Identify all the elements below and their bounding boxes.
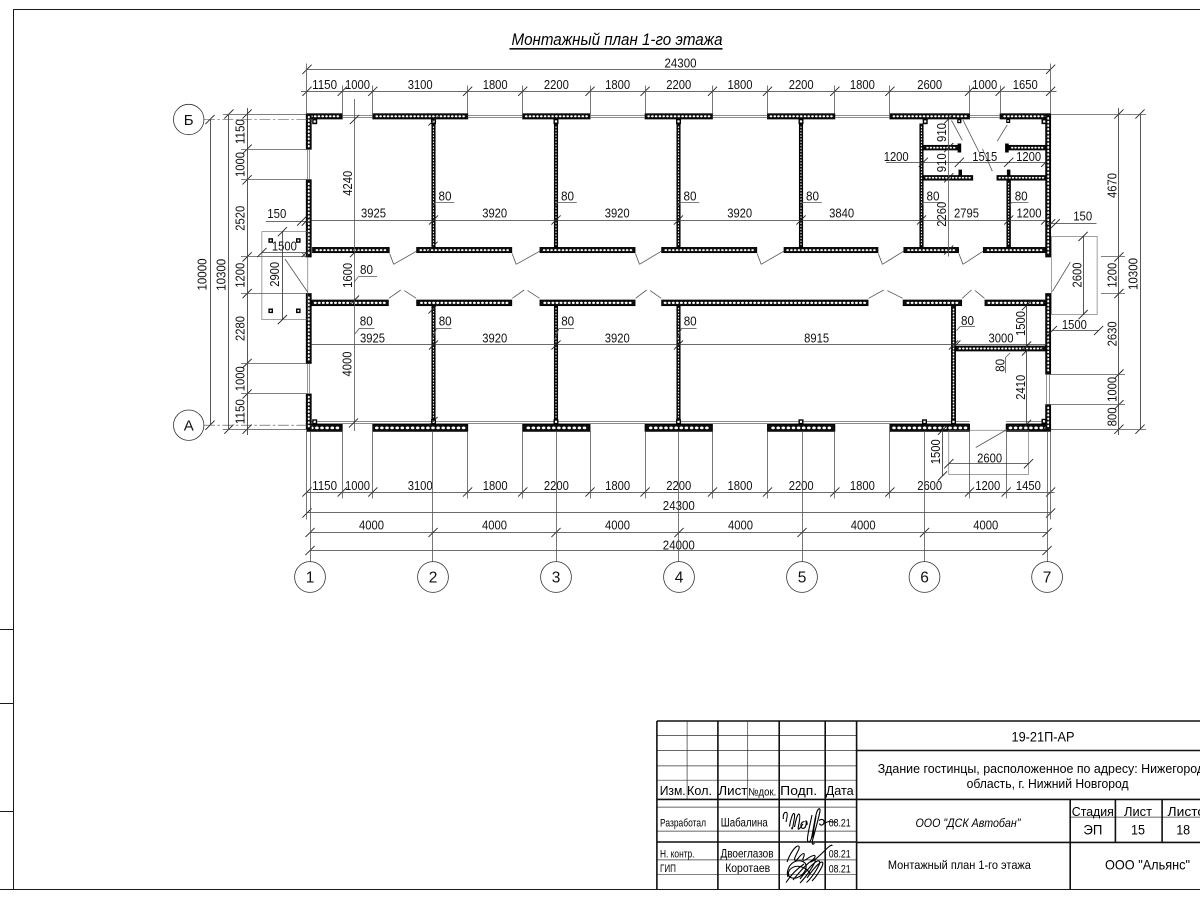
svg-text:1515: 1515: [972, 150, 997, 164]
svg-text:1150: 1150: [234, 119, 248, 144]
svg-text:2200: 2200: [789, 78, 814, 92]
svg-text:910: 910: [935, 153, 949, 172]
svg-text:3: 3: [552, 570, 561, 587]
svg-text:2600: 2600: [917, 78, 942, 92]
svg-text:Монтажный план 1-го этажа: Монтажный план 1-го этажа: [888, 858, 1031, 872]
svg-text:1800: 1800: [483, 78, 508, 92]
svg-text:Кол.: Кол.: [687, 783, 712, 798]
svg-text:1500: 1500: [929, 439, 943, 464]
svg-text:Лист: Лист: [1124, 804, 1152, 819]
svg-text:80: 80: [806, 189, 819, 203]
svg-text:1000: 1000: [972, 78, 997, 92]
svg-text:Изм.: Изм.: [660, 783, 686, 798]
svg-text:1200: 1200: [884, 150, 909, 164]
svg-text:1150: 1150: [312, 78, 337, 92]
svg-text:3840: 3840: [829, 207, 854, 221]
svg-text:15: 15: [1131, 822, 1145, 837]
svg-text:4240: 4240: [341, 171, 355, 196]
svg-text:18: 18: [1176, 822, 1190, 837]
svg-text:1450: 1450: [1016, 479, 1041, 493]
svg-text:1150: 1150: [234, 399, 248, 424]
svg-text:2: 2: [429, 570, 438, 587]
svg-text:24300: 24300: [665, 57, 697, 71]
svg-text:80: 80: [961, 314, 974, 328]
svg-text:150: 150: [267, 207, 286, 221]
svg-text:2600: 2600: [1071, 262, 1085, 287]
svg-text:80: 80: [439, 315, 452, 329]
svg-text:4000: 4000: [973, 519, 998, 533]
svg-text:Разработал: Разработал: [660, 818, 706, 830]
svg-text:80: 80: [561, 189, 574, 203]
svg-text:1200: 1200: [1016, 150, 1041, 164]
svg-text:Подп.: Подп.: [780, 783, 817, 798]
svg-text:3920: 3920: [482, 331, 507, 345]
svg-text:2630: 2630: [1105, 321, 1119, 346]
svg-text:Листов: Листов: [1168, 804, 1200, 819]
svg-text:4000: 4000: [728, 519, 753, 533]
svg-text:№док.: №док.: [748, 786, 776, 798]
svg-text:Коротаев: Коротаев: [725, 862, 770, 875]
svg-text:80: 80: [927, 189, 940, 203]
svg-text:1800: 1800: [605, 479, 630, 493]
svg-text:2280: 2280: [234, 316, 248, 341]
svg-text:1500: 1500: [272, 240, 297, 254]
svg-text:Б: Б: [184, 112, 194, 129]
svg-text:1000: 1000: [345, 479, 370, 493]
svg-text:Стадия: Стадия: [1072, 804, 1114, 819]
svg-text:08.21: 08.21: [829, 863, 851, 875]
svg-text:2520: 2520: [234, 206, 248, 231]
svg-text:2260: 2260: [935, 202, 949, 227]
svg-text:Лист: Лист: [718, 783, 747, 798]
svg-text:4670: 4670: [1105, 173, 1119, 198]
svg-text:3100: 3100: [408, 78, 433, 92]
svg-text:7: 7: [1043, 570, 1052, 587]
svg-text:2600: 2600: [977, 451, 1002, 465]
svg-text:4000: 4000: [851, 519, 876, 533]
svg-text:6: 6: [920, 570, 929, 587]
svg-text:1000: 1000: [345, 78, 370, 92]
svg-text:80: 80: [360, 263, 373, 277]
svg-text:8915: 8915: [804, 331, 829, 345]
svg-text:Двоеглазов: Двоеглазов: [721, 847, 774, 860]
svg-text:1650: 1650: [1013, 78, 1038, 92]
svg-text:80: 80: [439, 189, 452, 203]
svg-text:3920: 3920: [605, 331, 630, 345]
svg-text:1150: 1150: [312, 479, 337, 493]
svg-text:Монтажный план 1-го этажа: Монтажный план 1-го этажа: [512, 30, 723, 49]
svg-text:1: 1: [306, 570, 315, 587]
svg-text:1800: 1800: [483, 479, 508, 493]
svg-text:5: 5: [798, 570, 807, 587]
svg-text:19-21П-АР: 19-21П-АР: [1012, 728, 1075, 744]
svg-text:08.21: 08.21: [829, 848, 851, 860]
svg-text:1800: 1800: [728, 78, 753, 92]
svg-text:2600: 2600: [917, 479, 942, 493]
svg-text:ООО "ДСК Автобан": ООО "ДСК Автобан": [916, 816, 1022, 830]
svg-text:4000: 4000: [341, 351, 355, 376]
svg-text:4000: 4000: [359, 519, 384, 533]
svg-text:А: А: [184, 418, 194, 435]
svg-text:10000: 10000: [195, 258, 209, 290]
svg-text:3000: 3000: [989, 331, 1014, 345]
svg-text:ГИП: ГИП: [660, 863, 676, 875]
svg-text:1800: 1800: [850, 479, 875, 493]
svg-text:Шабалина: Шабалина: [721, 817, 768, 830]
svg-text:2200: 2200: [666, 78, 691, 92]
svg-text:1200: 1200: [975, 479, 1000, 493]
svg-text:Н. контр.: Н. контр.: [660, 848, 695, 860]
svg-text:2795: 2795: [954, 206, 979, 220]
svg-text:1000: 1000: [234, 366, 248, 391]
svg-text:Здание гостинцы, расположенное: Здание гостинцы, расположенное по адресу…: [878, 761, 1200, 776]
svg-text:08.21: 08.21: [829, 818, 851, 830]
svg-text:1200: 1200: [234, 263, 248, 288]
svg-text:4000: 4000: [605, 519, 630, 533]
svg-text:80: 80: [561, 315, 574, 329]
svg-text:3925: 3925: [361, 207, 386, 221]
svg-text:ЭП: ЭП: [1083, 822, 1102, 837]
svg-text:10300: 10300: [1126, 258, 1140, 290]
svg-text:80: 80: [684, 189, 697, 203]
svg-text:1800: 1800: [605, 78, 630, 92]
svg-text:2200: 2200: [544, 78, 569, 92]
svg-text:1600: 1600: [341, 263, 355, 288]
svg-text:область, г. Нижний Новгород: область, г. Нижний Новгород: [967, 776, 1129, 791]
svg-text:1800: 1800: [850, 78, 875, 92]
svg-text:1800: 1800: [728, 479, 753, 493]
svg-text:3920: 3920: [482, 207, 507, 221]
svg-text:1500: 1500: [1062, 318, 1087, 332]
svg-text:800: 800: [1105, 407, 1119, 426]
svg-text:2410: 2410: [1014, 375, 1028, 400]
svg-text:10300: 10300: [214, 259, 228, 291]
svg-text:2200: 2200: [789, 479, 814, 493]
svg-text:150: 150: [1073, 209, 1092, 223]
svg-text:3925: 3925: [360, 331, 385, 345]
svg-text:1200: 1200: [1017, 206, 1042, 220]
svg-text:ООО "Альянс": ООО "Альянс": [1105, 857, 1190, 873]
svg-text:80: 80: [360, 314, 373, 328]
svg-text:1200: 1200: [1105, 263, 1119, 288]
svg-text:80: 80: [1015, 189, 1028, 203]
svg-text:4: 4: [675, 570, 684, 587]
svg-text:3920: 3920: [605, 207, 630, 221]
svg-text:Дата: Дата: [826, 783, 855, 798]
svg-text:1500: 1500: [1014, 311, 1028, 336]
svg-text:910: 910: [935, 123, 949, 142]
svg-text:3100: 3100: [408, 479, 433, 493]
svg-text:1000: 1000: [234, 152, 248, 177]
svg-text:1000: 1000: [1105, 377, 1119, 402]
svg-text:4000: 4000: [482, 519, 507, 533]
svg-text:80: 80: [684, 315, 697, 329]
svg-text:2900: 2900: [268, 262, 282, 287]
svg-text:3920: 3920: [727, 207, 752, 221]
